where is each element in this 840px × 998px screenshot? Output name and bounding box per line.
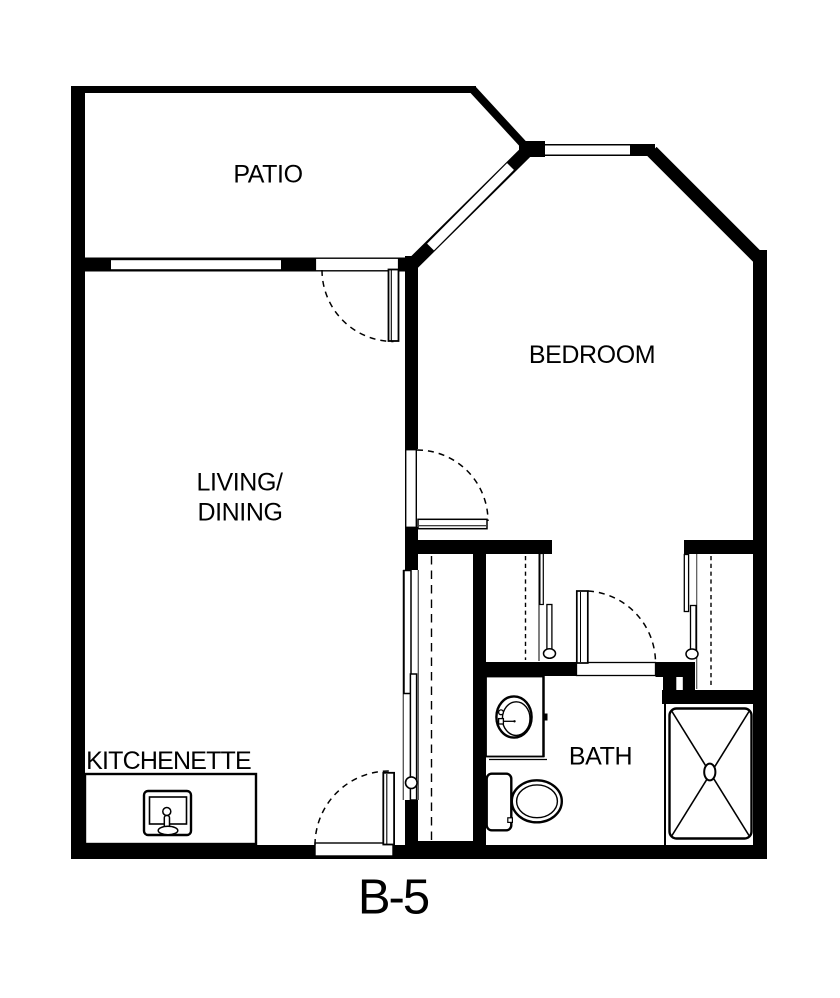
svg-text:PATIO: PATIO: [233, 161, 302, 189]
svg-text:B-5: B-5: [358, 871, 429, 925]
svg-text:DINING: DINING: [197, 499, 282, 527]
svg-text:KITCHENETTE: KITCHENETTE: [86, 747, 251, 775]
svg-text:LIVING/: LIVING/: [196, 469, 283, 497]
svg-text:BEDROOM: BEDROOM: [529, 341, 655, 369]
svg-text:BATH: BATH: [569, 743, 632, 771]
